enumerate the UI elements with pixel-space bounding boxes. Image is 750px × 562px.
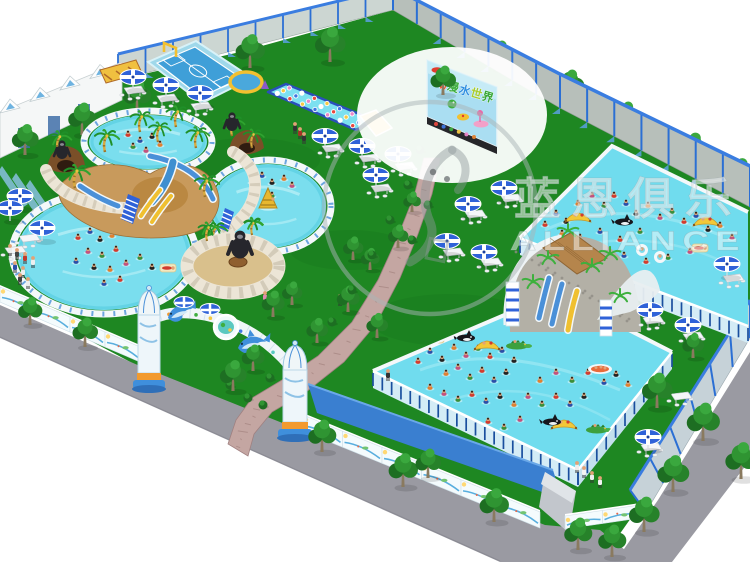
palm-coconut xyxy=(105,134,108,137)
tree-canopy xyxy=(700,403,712,415)
swimmer-hair xyxy=(93,264,95,266)
tree-shadow xyxy=(321,59,345,66)
swimmer-hair xyxy=(603,379,605,381)
lane-dot-center xyxy=(325,102,328,105)
emblem-art-dot xyxy=(221,323,225,327)
swimmer-hair xyxy=(139,137,141,139)
mural-hill xyxy=(122,346,128,349)
waterpark-3d-render: 动漫水世界 ALLIANCE 蓝恩俱乐 xyxy=(0,0,750,562)
billboard-thumb xyxy=(464,132,468,136)
tree-canopy xyxy=(319,420,329,430)
person-head xyxy=(15,248,19,252)
rider xyxy=(482,341,485,344)
umbrella-finial xyxy=(199,92,202,95)
umbrella-shadow xyxy=(721,275,741,281)
tree-canopy xyxy=(654,373,665,384)
stool xyxy=(485,270,489,273)
swimmer-hair xyxy=(89,228,91,230)
billboard-thumb xyxy=(457,130,461,134)
stool xyxy=(391,170,395,173)
swimmer-hair xyxy=(261,172,263,174)
person-body xyxy=(590,475,594,480)
umbrella-finial xyxy=(726,263,729,266)
tree-canopy xyxy=(230,360,239,369)
stone-speckle xyxy=(577,285,580,288)
stool xyxy=(647,328,651,331)
tree-canopy xyxy=(670,455,681,466)
swimmer-hair xyxy=(127,131,129,133)
tree-shadow xyxy=(486,520,509,527)
stone-speckle xyxy=(561,277,564,280)
tree-shadow xyxy=(78,345,98,351)
person-head xyxy=(263,291,267,295)
swimmer-hair xyxy=(503,424,505,426)
swimmer-hair xyxy=(571,377,573,379)
swimmer-hair xyxy=(499,393,501,395)
lane-dot-center xyxy=(338,107,341,110)
tree-shadow xyxy=(247,369,265,374)
swimmer-hair xyxy=(457,396,459,398)
emblem-art xyxy=(218,320,234,334)
orca-belly xyxy=(549,422,557,425)
tree-canopy xyxy=(351,236,358,243)
swimmer-hair xyxy=(103,280,105,282)
tree-canopy xyxy=(327,27,338,38)
tree-shadow xyxy=(688,356,705,361)
tree-shadow xyxy=(604,555,626,562)
swimmer-hair xyxy=(417,358,419,360)
stool xyxy=(399,174,403,177)
swimmer-hair xyxy=(539,377,541,379)
person-head xyxy=(302,132,306,136)
mural-hill xyxy=(441,479,447,482)
person-body xyxy=(8,248,12,253)
stone-speckle xyxy=(628,318,631,321)
arch-canopy xyxy=(174,297,194,308)
umbrella-shadow xyxy=(194,104,214,110)
umbrella-finial xyxy=(467,203,470,206)
mural-dot xyxy=(357,445,359,447)
gorilla-face xyxy=(230,115,234,118)
tree-canopy xyxy=(691,333,699,341)
palm-coconut xyxy=(252,222,254,224)
palm-coconut xyxy=(75,169,78,172)
swimmer-hair xyxy=(145,147,147,149)
swimmer-hair xyxy=(139,254,141,256)
gorilla-face xyxy=(237,235,243,239)
stool xyxy=(363,166,367,169)
person-head xyxy=(23,252,27,256)
stool xyxy=(136,97,140,100)
swimmer-hair xyxy=(469,374,471,376)
stool xyxy=(675,404,679,407)
arch-sticker xyxy=(209,316,213,320)
tree-shadow xyxy=(18,153,39,159)
tree-canopy xyxy=(79,103,89,113)
rider xyxy=(566,420,569,423)
stool xyxy=(667,400,671,403)
swimmer-hair xyxy=(445,370,447,372)
orca-eye xyxy=(556,420,558,422)
stool xyxy=(727,286,731,289)
person-head xyxy=(293,122,297,126)
umbrella-finial xyxy=(687,324,690,327)
umbrella-finial xyxy=(132,76,135,79)
rider xyxy=(514,340,517,343)
stool xyxy=(161,106,165,109)
person-head xyxy=(575,461,579,465)
tree-shadow xyxy=(648,405,672,412)
swimmer-hair xyxy=(283,175,285,177)
stool xyxy=(128,98,132,101)
swimmer-hair xyxy=(505,369,507,371)
palm-coconut xyxy=(205,179,208,182)
person-body xyxy=(18,277,22,282)
lane-dot-center xyxy=(301,102,304,105)
umbrella-finial xyxy=(324,135,327,138)
stool xyxy=(447,260,451,263)
swimmer-hair xyxy=(441,356,443,358)
swimmer-hair xyxy=(627,381,629,383)
umbrella-finial xyxy=(9,207,12,210)
person-body xyxy=(15,252,19,257)
person-body xyxy=(13,265,17,270)
tree-shadow xyxy=(395,485,418,492)
stool xyxy=(120,94,124,97)
palm-coconut xyxy=(140,115,143,118)
tree-canopy xyxy=(83,318,92,327)
swimmer-hair xyxy=(583,393,585,395)
umbrella-finial xyxy=(483,251,486,254)
stone-speckle xyxy=(584,290,587,293)
lane-dot-center xyxy=(319,105,322,108)
mural-sun xyxy=(462,482,466,486)
swimmer-hair xyxy=(541,401,543,403)
mural-hill xyxy=(621,513,627,516)
person-head xyxy=(18,273,22,277)
umbrella-shadow xyxy=(642,448,662,454)
billboard-thumb xyxy=(472,135,476,139)
tree-canopy xyxy=(400,453,410,463)
tree-shadow xyxy=(664,489,689,497)
tree-canopy xyxy=(396,224,403,231)
mural-sun xyxy=(71,319,75,323)
person-head xyxy=(298,127,302,131)
lane-dot-center xyxy=(307,100,310,103)
hex-goal-ring xyxy=(230,72,262,92)
umbrella-shadow xyxy=(462,215,482,221)
swimmer-hair xyxy=(555,393,557,395)
person-head xyxy=(386,369,390,373)
stool xyxy=(203,113,207,116)
banana-tip xyxy=(474,348,476,350)
tree-shadow xyxy=(24,323,43,329)
mural-hill xyxy=(520,511,526,514)
swimmer-hair xyxy=(485,398,487,400)
tree-canopy xyxy=(426,449,435,458)
stone-speckle xyxy=(538,264,541,267)
palm-coconut xyxy=(158,126,161,129)
tree-shadow xyxy=(372,336,389,341)
swimmer-hair xyxy=(87,248,89,250)
tree-shadow xyxy=(267,315,285,320)
tree-shadow xyxy=(408,211,422,215)
lane-dot-center xyxy=(350,112,353,115)
scene-canvas: 动漫水世界 ALLIANCE 蓝恩俱乐 xyxy=(0,0,750,562)
stool xyxy=(9,258,13,261)
swimmer-hair xyxy=(77,234,79,236)
rider xyxy=(594,424,597,427)
stool xyxy=(367,192,371,195)
swimmer-hair xyxy=(489,353,491,355)
watermark-dot xyxy=(444,176,450,182)
pool-water xyxy=(89,115,207,169)
mural-hill xyxy=(52,316,58,319)
umbrella-finial xyxy=(19,195,22,198)
rider xyxy=(604,367,607,370)
swimmer-hair xyxy=(493,377,495,379)
stool xyxy=(469,222,473,225)
tree-canopy xyxy=(738,442,749,453)
arch-sticker xyxy=(271,351,275,355)
mural-hill xyxy=(17,301,23,304)
person-body xyxy=(386,373,390,378)
orca-eye xyxy=(470,336,472,338)
mural-dot xyxy=(476,494,478,496)
rider xyxy=(595,366,598,369)
mural-sun xyxy=(603,512,607,516)
swimmer-hair xyxy=(513,401,515,403)
mural-hill xyxy=(362,446,368,449)
swimmer-hair xyxy=(501,347,503,349)
person-body xyxy=(23,256,27,261)
swimmer-hair xyxy=(101,252,103,254)
bush-top xyxy=(348,285,353,290)
stool xyxy=(187,110,191,113)
umbrella-shadow xyxy=(127,88,147,94)
person-head xyxy=(582,466,586,470)
umbrella-shadow xyxy=(4,219,24,225)
tree-canopy xyxy=(271,290,279,298)
stool xyxy=(31,245,35,248)
lane-dot-center xyxy=(344,115,347,118)
umbrella-finial xyxy=(375,174,378,177)
climber xyxy=(271,197,274,200)
stool xyxy=(355,162,359,165)
stool xyxy=(1,254,5,257)
lane-dot-center xyxy=(351,124,354,127)
watermark-dot xyxy=(430,169,436,175)
stool xyxy=(195,114,199,117)
lane-dot-center xyxy=(288,97,291,100)
stool xyxy=(383,195,387,198)
bush-top xyxy=(244,393,249,398)
stone-speckle xyxy=(589,297,592,300)
billboard-thumb xyxy=(434,122,438,126)
swimmer-hair xyxy=(481,367,483,369)
umbrella-finial xyxy=(165,84,168,87)
tree-shadow xyxy=(287,304,303,309)
stool xyxy=(169,105,173,108)
lane-dot-center xyxy=(326,113,329,116)
lane-dot-center xyxy=(276,92,279,95)
umbrella-shadow xyxy=(356,157,376,163)
stone-speckle xyxy=(626,320,629,323)
person-head xyxy=(21,266,25,270)
stool xyxy=(17,257,21,260)
tree-shadow xyxy=(421,476,441,482)
stool xyxy=(375,196,379,199)
umbrella-shadow xyxy=(319,147,339,153)
swimmer-hair xyxy=(271,192,273,194)
arch-sticker xyxy=(239,329,243,333)
dome-finial xyxy=(147,286,152,291)
swimmer-hair xyxy=(519,416,521,418)
swimmer-hair xyxy=(99,236,101,238)
tree-shadow xyxy=(693,438,719,446)
lane-dot-center xyxy=(300,91,303,94)
person-body xyxy=(31,260,35,265)
person-body xyxy=(582,470,586,475)
person-body xyxy=(302,136,306,141)
submarine-dot xyxy=(462,115,464,117)
bush-top xyxy=(404,180,409,185)
tree-shadow xyxy=(342,310,360,315)
gorilla-face xyxy=(60,143,64,146)
palm-coconut xyxy=(207,226,210,229)
umbrella-shadow xyxy=(644,321,664,327)
lane-dot-center xyxy=(288,86,291,89)
umbrella-finial xyxy=(41,227,44,230)
mural-sun xyxy=(383,450,387,454)
mural-sun xyxy=(1,289,5,293)
swimmer-hair xyxy=(429,384,431,386)
pillar-base-foot xyxy=(132,385,166,393)
watermark-english-text: ALLIANCE xyxy=(510,226,746,256)
stone-speckle xyxy=(568,282,571,285)
tree-shadow xyxy=(366,269,381,274)
swimmer-hair xyxy=(615,371,617,373)
person-body xyxy=(575,465,579,470)
billboard-thumb xyxy=(449,127,453,131)
lane-dot-center xyxy=(282,89,285,92)
lane-dot-center xyxy=(313,97,316,100)
umbrella-shadow xyxy=(160,96,180,102)
umbrella-shadow xyxy=(478,263,498,269)
person-body xyxy=(598,480,602,485)
stool xyxy=(735,285,739,288)
swimmer-hair xyxy=(125,260,127,262)
umbrella-shadow xyxy=(36,239,56,245)
mural-sun xyxy=(106,334,110,338)
tree-canopy xyxy=(28,297,37,306)
bush-top xyxy=(328,317,333,322)
stool xyxy=(371,165,375,168)
stool xyxy=(639,324,643,327)
lane-dot-center xyxy=(294,94,297,97)
stool xyxy=(683,403,687,406)
boat-float xyxy=(588,364,612,374)
umbrella-finial xyxy=(503,187,506,190)
tree-shadow xyxy=(312,341,329,346)
tree-canopy xyxy=(641,497,652,508)
bush-top xyxy=(259,400,264,405)
tree-canopy xyxy=(441,66,450,75)
grotto-table xyxy=(229,257,247,267)
rider-head xyxy=(171,266,174,269)
umbrella-shadow xyxy=(370,186,390,192)
swimmer-hair xyxy=(159,141,161,143)
rider xyxy=(489,341,492,344)
tree-canopy xyxy=(410,191,416,197)
person-body xyxy=(26,281,30,286)
tree-canopy xyxy=(375,313,383,321)
stool xyxy=(153,102,157,105)
stone-speckle xyxy=(619,315,622,318)
banana-tip xyxy=(575,427,577,429)
rider-lying xyxy=(162,266,172,270)
stool xyxy=(15,242,19,245)
person-head xyxy=(598,476,602,480)
tree-shadow xyxy=(393,247,409,252)
swimmer-hair xyxy=(429,348,431,350)
tree-canopy xyxy=(315,318,323,326)
rider xyxy=(600,366,603,369)
palm-coconut xyxy=(196,131,199,134)
pillar-orange-band xyxy=(282,422,308,429)
stone-speckle xyxy=(547,267,550,270)
stool xyxy=(493,269,497,272)
bush-top xyxy=(408,235,413,240)
swimmer-hair xyxy=(443,390,445,392)
bush-top xyxy=(266,373,271,378)
stool xyxy=(505,206,509,209)
mural-dot xyxy=(48,315,50,317)
swimmer-hair xyxy=(151,264,153,266)
person-head xyxy=(26,277,30,281)
person-head xyxy=(13,261,17,265)
tree-shadow xyxy=(226,389,247,395)
lane-dot-center xyxy=(332,110,335,113)
tree-canopy xyxy=(251,344,259,352)
stone-speckle xyxy=(582,292,585,295)
swimmer-hair xyxy=(457,364,459,366)
mural-dot xyxy=(13,300,15,302)
mural-dot xyxy=(118,345,120,347)
banana-tip xyxy=(551,427,553,429)
tree-canopy xyxy=(491,488,501,498)
tree-shadow xyxy=(570,548,592,555)
stool xyxy=(318,152,322,155)
tree-canopy xyxy=(290,281,297,288)
stool xyxy=(719,282,723,285)
umbrella-finial xyxy=(361,145,364,148)
stool xyxy=(653,454,657,457)
swimmer-hair xyxy=(132,143,134,145)
tree-canopy xyxy=(22,124,31,133)
swimmer-hair xyxy=(465,352,467,354)
palm-coconut xyxy=(252,133,255,136)
palm-coconut xyxy=(176,110,179,113)
swimmer-hair xyxy=(487,418,489,420)
swimmer-hair xyxy=(513,357,515,359)
pillar-orange-band xyxy=(137,373,161,380)
person-body xyxy=(293,126,297,131)
stool xyxy=(679,340,683,343)
swimmer-hair xyxy=(453,344,455,346)
person-body xyxy=(298,131,302,136)
lane-dot-center xyxy=(338,119,341,122)
